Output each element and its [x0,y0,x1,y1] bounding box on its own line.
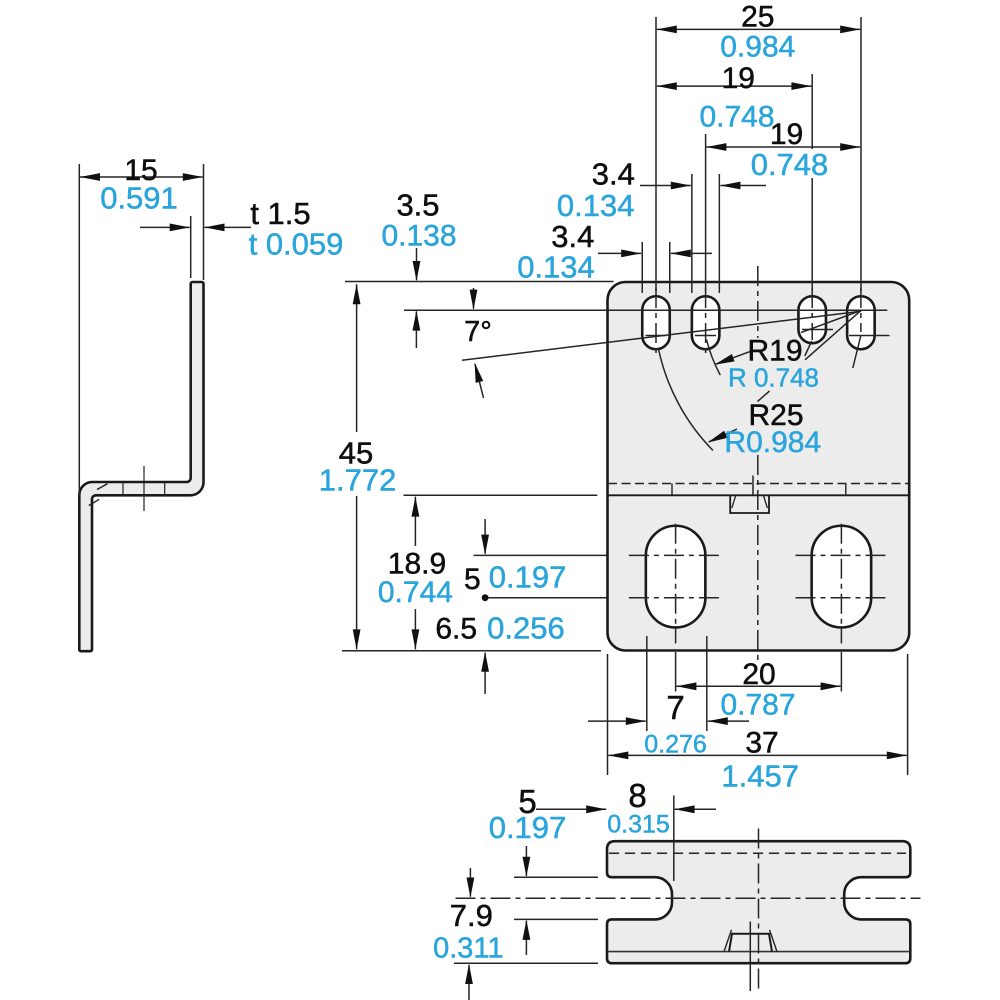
svg-text:0.984: 0.984 [720,31,795,64]
svg-text:0.134: 0.134 [557,188,635,223]
svg-text:0.787: 0.787 [720,689,795,722]
svg-text:1.457: 1.457 [721,759,799,794]
svg-text:8: 8 [628,777,646,814]
svg-text:1.772: 1.772 [319,463,397,498]
svg-text:0.138: 0.138 [381,220,456,253]
svg-text:0.591: 0.591 [100,181,178,216]
svg-text:37: 37 [745,727,778,760]
svg-text:7°: 7° [464,316,492,348]
svg-text:0.276: 0.276 [644,731,707,759]
svg-text:3.4: 3.4 [592,157,635,192]
svg-text:0.256: 0.256 [487,611,565,646]
svg-text:R 0.748: R 0.748 [728,363,819,393]
svg-text:t 0.059: t 0.059 [249,227,344,262]
svg-text:5: 5 [464,563,481,596]
svg-text:7: 7 [666,689,684,726]
svg-text:0.748: 0.748 [751,147,829,182]
svg-text:19: 19 [722,62,755,95]
svg-text:0.197: 0.197 [489,560,567,595]
svg-text:0.311: 0.311 [433,933,503,965]
svg-text:0.197: 0.197 [489,810,567,845]
svg-text:6.5: 6.5 [435,613,477,646]
svg-text:0.748: 0.748 [699,101,774,134]
svg-text:0.315: 0.315 [607,811,670,839]
svg-text:3.5: 3.5 [396,188,439,223]
svg-text:7.9: 7.9 [450,898,493,933]
svg-text:0.134: 0.134 [517,250,595,285]
svg-text:20: 20 [742,658,775,691]
svg-text:0.744: 0.744 [378,576,453,609]
svg-text:25: 25 [741,0,774,33]
svg-text:R0.984: R0.984 [724,426,821,459]
